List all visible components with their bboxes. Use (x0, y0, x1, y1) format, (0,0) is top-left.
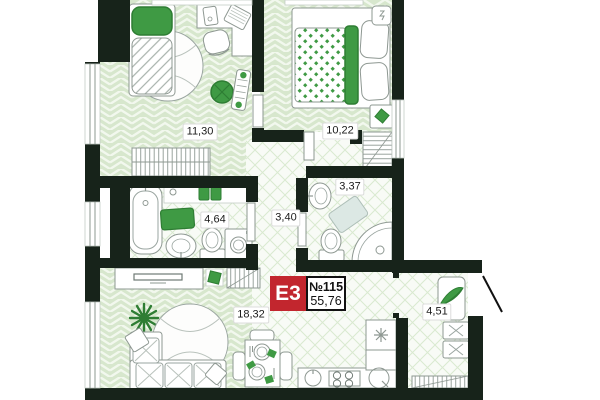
room-area-wc: 3,37 (335, 179, 364, 196)
bath-mat-icon (160, 208, 194, 230)
fridge-icon (366, 320, 396, 350)
single-bed-icon (129, 4, 175, 96)
pouf-icon (211, 81, 233, 103)
floor-plan: 11,30 10,22 4,64 3,40 3,37 18,32 4,51 E3… (0, 0, 600, 400)
unit-type-badge: E3 (270, 276, 306, 311)
unit-total-area: 55,76 (310, 294, 341, 308)
balcony-radiator-icon (412, 376, 468, 388)
room-area-living: 18,32 (233, 307, 269, 324)
room-area-bedroom-1: 11,30 (183, 124, 218, 141)
room-area-hallway: 3,40 (271, 210, 300, 227)
room-area-bathroom: 4,64 (200, 212, 229, 229)
room-area-balcony: 4,51 (422, 304, 451, 321)
nightstand-icon (370, 105, 393, 128)
wardrobe-icon (132, 148, 210, 176)
floor-plan-drawing (0, 0, 600, 400)
decor-box-icon (206, 269, 223, 286)
unit-number: №115 (309, 280, 343, 294)
radiator-icon (363, 132, 392, 171)
thermostat-icon (372, 6, 391, 25)
entrance-door-icon (483, 276, 502, 312)
unit-number-badge: №115 55,76 (306, 276, 346, 311)
living-radiator-icon (227, 268, 260, 288)
tv-stand-icon (115, 268, 203, 289)
room-area-bedroom-2: 10,22 (322, 123, 358, 140)
